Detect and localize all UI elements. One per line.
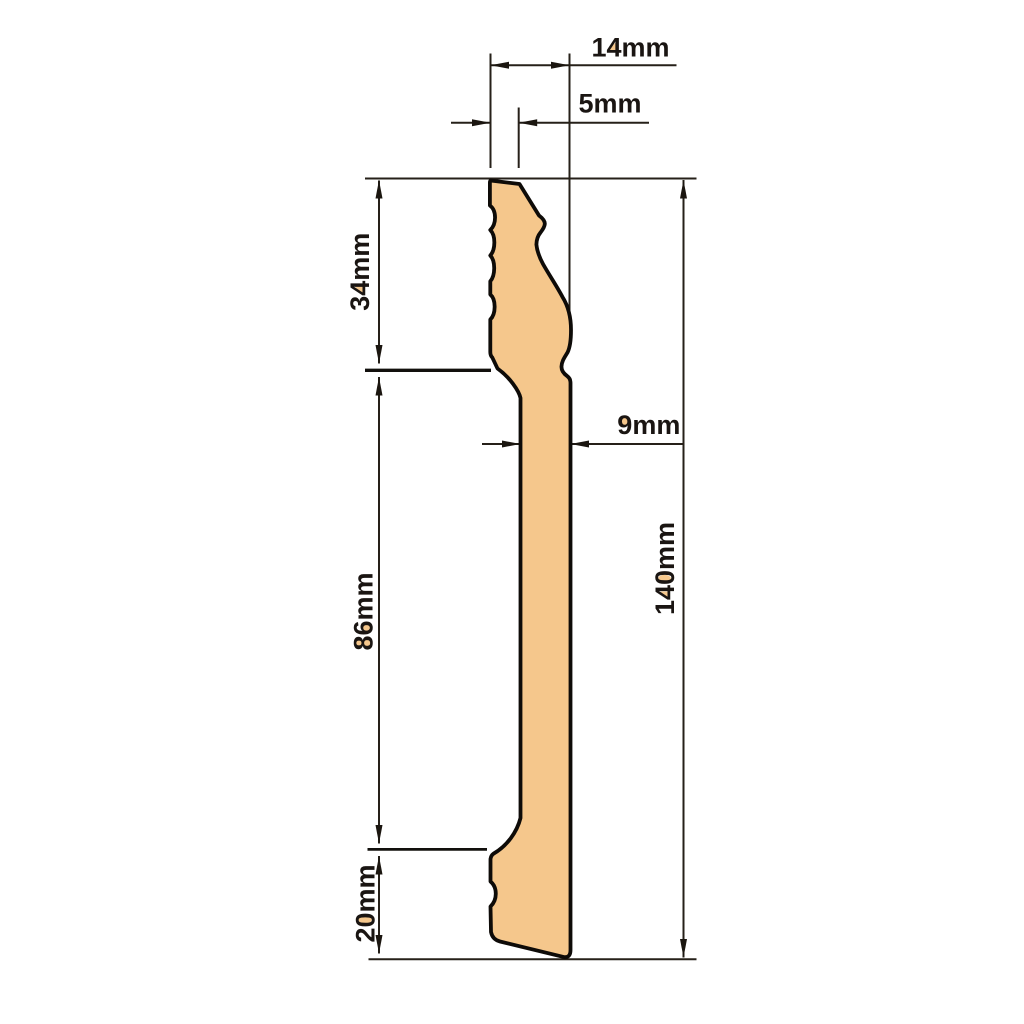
svg-text:140mm: 140mm — [650, 522, 680, 615]
svg-text:14mm: 14mm — [592, 33, 670, 63]
svg-text:9mm: 9mm — [617, 410, 680, 440]
svg-text:5mm: 5mm — [579, 89, 642, 119]
svg-text:20mm: 20mm — [351, 864, 381, 942]
svg-text:34mm: 34mm — [345, 233, 375, 311]
svg-text:86mm: 86mm — [349, 572, 379, 650]
